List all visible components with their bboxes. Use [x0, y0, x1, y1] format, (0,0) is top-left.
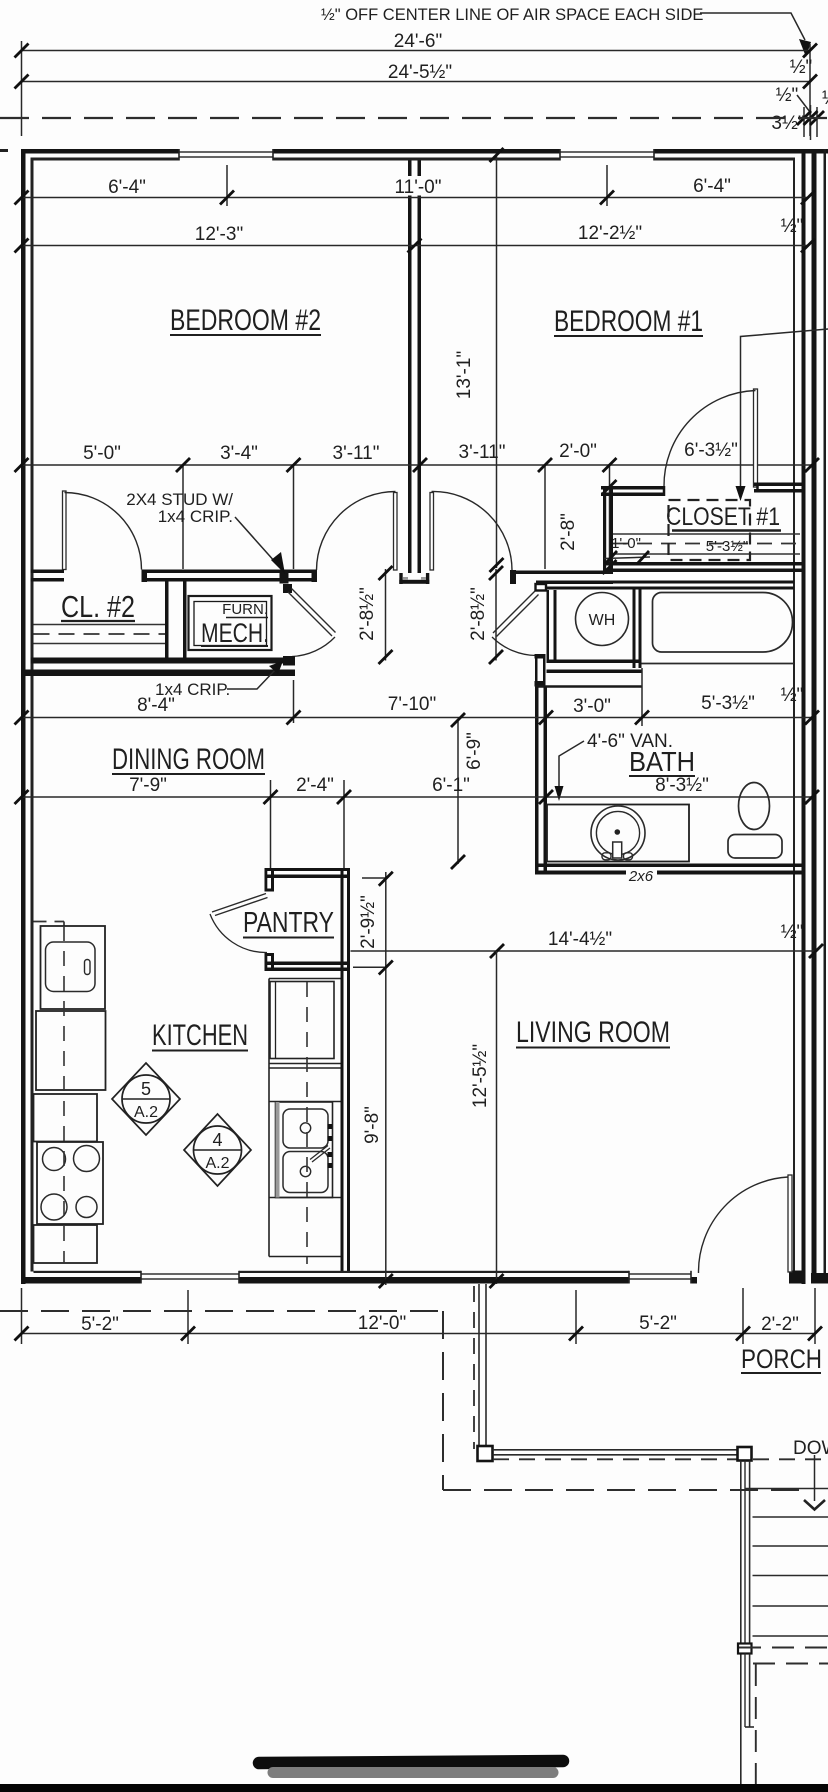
svg-text:FURN.: FURN. [222, 601, 268, 618]
svg-text:½": ½" [781, 216, 804, 237]
svg-text:½": ½" [781, 685, 804, 706]
svg-text:LIVING ROOM: LIVING ROOM [516, 1016, 670, 1049]
svg-text:9'-8": 9'-8" [362, 1106, 383, 1144]
svg-text:3'-4": 3'-4" [220, 443, 258, 464]
svg-text:11'-0": 11'-0" [395, 177, 442, 198]
svg-text:A.2: A.2 [205, 1155, 229, 1172]
svg-text:6'-9": 6'-9" [464, 732, 485, 770]
svg-text:7'-9": 7'-9" [129, 775, 167, 796]
svg-text:2'-8½": 2'-8½" [468, 587, 489, 641]
svg-text:12'-3": 12'-3" [195, 224, 243, 245]
svg-text:5'-3½": 5'-3½" [706, 538, 748, 555]
svg-text:5: 5 [141, 1079, 151, 1099]
svg-text:8'-3½": 8'-3½" [655, 775, 709, 796]
svg-text:6'-3½": 6'-3½" [684, 440, 738, 461]
svg-text:WH: WH [589, 612, 616, 629]
svg-text:13'-1": 13'-1" [454, 351, 475, 399]
svg-text:8'-4": 8'-4" [137, 695, 175, 716]
svg-text:12'-2½": 12'-2½" [578, 223, 642, 244]
svg-text:4: 4 [212, 1130, 222, 1150]
svg-text:2'-8½": 2'-8½" [357, 587, 378, 641]
svg-text:½": ½" [822, 88, 828, 109]
svg-text:1x4 CRIP.: 1x4 CRIP. [158, 507, 233, 526]
svg-text:4'-6" VAN.: 4'-6" VAN. [587, 731, 673, 752]
svg-text:2'-2": 2'-2" [761, 1314, 799, 1335]
svg-text:1'-0": 1'-0" [611, 535, 641, 552]
svg-text:12'-0": 12'-0" [358, 1313, 406, 1334]
svg-text:6'-4": 6'-4" [108, 177, 146, 198]
svg-text:14'-4½": 14'-4½" [548, 929, 612, 950]
svg-text:24'-5½": 24'-5½" [388, 62, 452, 83]
svg-text:½" OFF CENTER LINE OF AIR SPAC: ½" OFF CENTER LINE OF AIR SPACE EACH SID… [321, 6, 703, 24]
svg-text:BEDROOM #1: BEDROOM #1 [554, 305, 703, 338]
svg-text:3'-11": 3'-11" [333, 443, 380, 464]
svg-text:7'-10": 7'-10" [388, 694, 436, 715]
svg-text:CL. #2: CL. #2 [61, 589, 135, 624]
svg-text:12'-5½": 12'-5½" [470, 1044, 491, 1108]
svg-text:6'-4": 6'-4" [693, 176, 731, 197]
svg-text:2x6: 2x6 [628, 868, 654, 885]
svg-text:MECH.: MECH. [201, 618, 269, 648]
svg-text:KITCHEN: KITCHEN [152, 1019, 248, 1052]
svg-text:PORCH: PORCH [741, 1344, 822, 1374]
svg-text:5'-2": 5'-2" [81, 1314, 119, 1335]
svg-text:2'-8": 2'-8" [558, 513, 579, 551]
svg-text:DINING ROOM: DINING ROOM [112, 743, 265, 776]
svg-text:2'-4": 2'-4" [296, 775, 334, 796]
svg-text:½": ½" [781, 922, 804, 943]
svg-text:2'-0": 2'-0" [559, 441, 597, 462]
svg-text:CLOSET #1: CLOSET #1 [666, 503, 780, 531]
svg-text:A.2: A.2 [134, 1104, 158, 1121]
svg-text:3'-0": 3'-0" [573, 696, 611, 717]
svg-text:PANTRY: PANTRY [243, 907, 334, 939]
svg-text:5'-2": 5'-2" [639, 1313, 677, 1334]
svg-text:½": ½" [776, 85, 799, 106]
svg-text:3'-11": 3'-11" [459, 442, 506, 463]
svg-text:½": ½" [790, 57, 813, 78]
svg-text:24'-6": 24'-6" [394, 31, 442, 52]
svg-text:5'-3½": 5'-3½" [701, 693, 755, 714]
svg-text:DOWN: DOWN [793, 1438, 828, 1459]
svg-text:BEDROOM #2: BEDROOM #2 [170, 304, 321, 337]
svg-text:5'-0": 5'-0" [83, 443, 121, 464]
svg-text:6'-1": 6'-1" [432, 775, 470, 796]
svg-text:2'-9½": 2'-9½" [358, 895, 379, 949]
